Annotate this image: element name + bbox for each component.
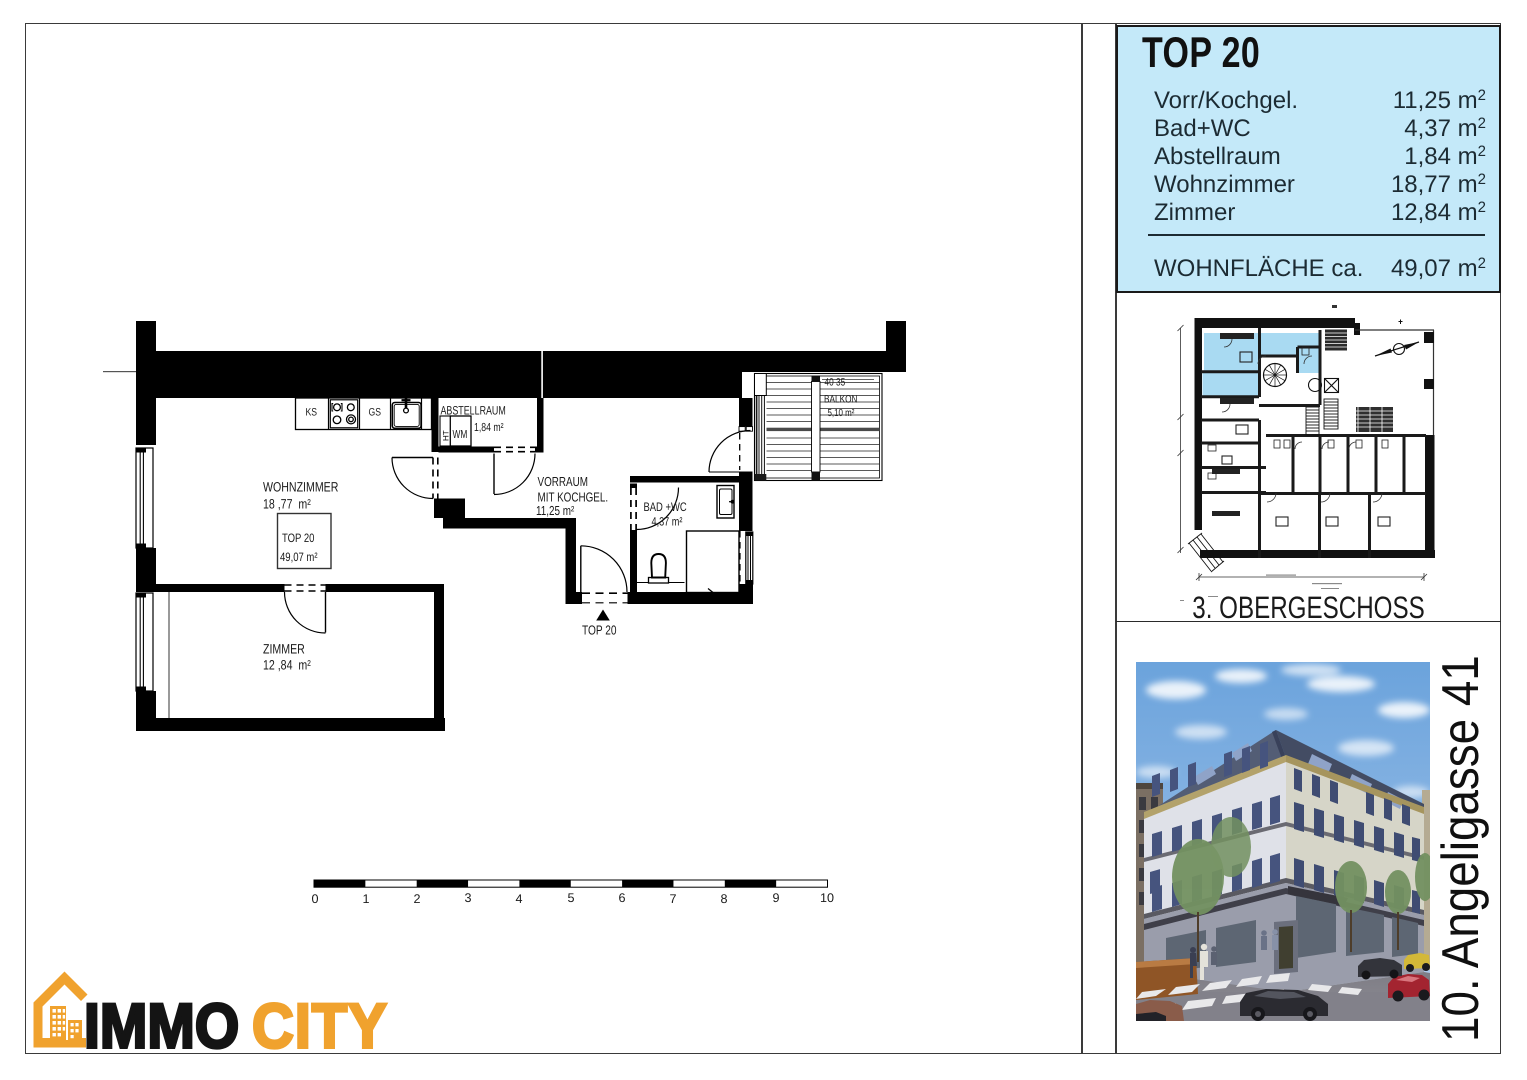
svg-text:ABSTELLRAUM: ABSTELLRAUM [441,404,506,418]
svg-text:TOP 20: TOP 20 [282,531,315,545]
svg-text:11,25 m²: 11,25 m² [536,503,575,518]
svg-text:BALKON: BALKON [824,394,858,406]
svg-text:5,10 m²: 5,10 m² [828,408,855,419]
svg-text:4,37 m²: 4,37 m² [652,515,683,529]
svg-text:10: 10 [820,891,834,905]
svg-text:BAD +WC: BAD +WC [644,500,687,514]
svg-text:4: 4 [515,892,522,906]
svg-text:WM: WM [453,428,468,441]
svg-text:7: 7 [669,892,676,906]
svg-text:GS: GS [369,407,381,419]
svg-text:5: 5 [567,891,574,905]
svg-text:40 35: 40 35 [825,377,846,389]
svg-text:49,07 m²: 49,07 m² [280,550,318,564]
svg-text:WOHNZIMMER: WOHNZIMMER [263,480,339,495]
svg-text:IMMO: IMMO [84,992,239,1055]
svg-text:18 ,77 m²: 18 ,77 m² [263,497,311,512]
svg-text:1: 1 [362,892,369,906]
svg-text:KS: KS [306,407,318,419]
svg-text:6: 6 [618,891,625,905]
svg-text:CITY: CITY [252,992,388,1055]
svg-text:2: 2 [413,892,420,906]
svg-text:9: 9 [772,891,779,905]
svg-text:3: 3 [464,891,471,905]
svg-text:1,84 m²: 1,84 m² [474,421,504,434]
svg-text:0: 0 [311,892,318,906]
svg-text:12 ,84 m²: 12 ,84 m² [263,658,311,673]
svg-text:TOP 20: TOP 20 [582,623,617,638]
svg-text:VORRAUM: VORRAUM [538,474,589,489]
svg-text:ZIMMER: ZIMMER [263,642,305,657]
svg-text:8: 8 [720,892,727,906]
svg-text:HT: HT [442,430,451,441]
